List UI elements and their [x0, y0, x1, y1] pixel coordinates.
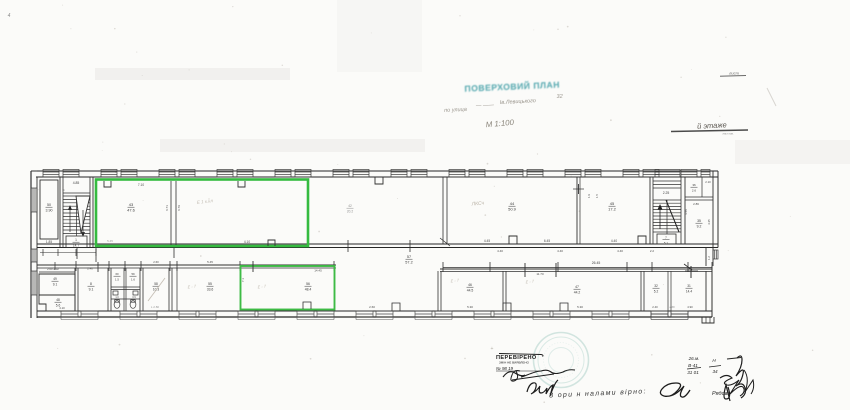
svg-text:2.60: 2.60: [369, 305, 375, 309]
svg-text:9.2: 9.2: [697, 225, 702, 229]
svg-text:4.10: 4.10: [244, 240, 250, 244]
svg-text:32: 32: [654, 284, 658, 288]
svg-text:33.6: 33.6: [207, 288, 214, 292]
svg-text:1.5: 1.5: [115, 278, 119, 282]
svg-text:31: 31: [687, 284, 691, 288]
svg-text:46: 46: [468, 283, 472, 287]
svg-text:6.79: 6.79: [177, 205, 181, 211]
svg-text:14.4: 14.4: [686, 290, 692, 294]
svg-text:14.45: 14.45: [314, 269, 322, 273]
svg-text:34: 34: [712, 369, 718, 374]
svg-text:4.45: 4.45: [484, 239, 490, 243]
svg-text:32: 32: [556, 94, 562, 100]
svg-text:6.71: 6.71: [165, 205, 169, 211]
svg-text:45: 45: [610, 201, 615, 206]
svg-text:1.6: 1.6: [131, 278, 135, 282]
svg-text:43: 43: [129, 202, 134, 207]
svg-text:20.2: 20.2: [347, 210, 353, 214]
svg-text:44: 44: [510, 201, 515, 206]
svg-text:3.90: 3.90: [46, 209, 53, 213]
svg-text:+: +: [491, 346, 494, 352]
svg-text:2.40: 2.40: [652, 305, 658, 309]
svg-text:2.6: 2.6: [692, 189, 697, 193]
svg-text:9.1: 9.1: [53, 283, 58, 287]
svg-text:2.46: 2.46: [87, 267, 93, 271]
svg-text:5.2: 5.2: [654, 290, 659, 294]
svg-text:2.60: 2.60: [153, 260, 159, 264]
svg-text:2.10: 2.10: [705, 180, 711, 184]
svg-text:— ——: — ——: [475, 102, 495, 109]
svg-text:14.7: 14.7: [73, 244, 79, 248]
svg-text:57: 57: [407, 255, 411, 259]
svg-text:42: 42: [348, 204, 352, 208]
svg-text:48: 48: [56, 298, 60, 302]
svg-text:4.10: 4.10: [59, 306, 65, 310]
svg-text:57.2: 57.2: [405, 261, 412, 265]
svg-text:лист: лист: [728, 71, 739, 76]
svg-text:7.10: 7.10: [138, 183, 144, 187]
svg-text:4.90: 4.90: [687, 305, 693, 309]
svg-text:26.м.: 26.м.: [688, 356, 700, 361]
svg-text:4.55: 4.55: [684, 209, 688, 215]
svg-text:17.2: 17.2: [608, 207, 617, 212]
svg-text:2.86: 2.86: [693, 202, 699, 206]
svg-text:5.45: 5.45: [107, 239, 113, 243]
svg-text:50: 50: [47, 203, 51, 207]
svg-text:1.5: 1.5: [595, 194, 599, 198]
svg-text:50.9: 50.9: [508, 207, 517, 212]
svg-text:36: 36: [692, 183, 696, 187]
svg-text:№ 98 19: № 98 19: [496, 366, 514, 371]
svg-text:7.1: 7.1: [241, 278, 245, 282]
svg-text:4.40: 4.40: [497, 249, 503, 253]
svg-text:5.30: 5.30: [577, 305, 583, 309]
svg-text:4: 4: [8, 13, 11, 19]
svg-text:4.40: 4.40: [617, 249, 623, 253]
svg-text:1: 1: [75, 238, 77, 242]
svg-text:60: 60: [115, 272, 119, 276]
svg-text:ЗМІН НЕ ВИЯВЛЕНО: ЗМІН НЕ ВИЯВЛЕНО: [499, 361, 530, 365]
svg-text:4.40: 4.40: [611, 239, 617, 243]
svg-text:4.85: 4.85: [73, 181, 80, 185]
svg-text:44.5: 44.5: [467, 289, 474, 293]
svg-text:49: 49: [53, 277, 57, 281]
svg-text:по улица: по улица: [444, 107, 467, 114]
svg-text:лист пов.: лист пов.: [722, 133, 733, 136]
svg-text:L 2.80: L 2.80: [151, 305, 160, 309]
svg-text:4.40: 4.40: [557, 249, 563, 253]
svg-text:й этаже: й этаже: [697, 120, 727, 131]
svg-text:47.6: 47.6: [127, 208, 136, 213]
svg-text:1.9: 1.9: [587, 194, 591, 198]
svg-text:59: 59: [131, 272, 135, 276]
svg-text:1.85: 1.85: [46, 240, 52, 244]
svg-text:31 01: 31 01: [687, 370, 699, 375]
svg-text:2.25: 2.25: [663, 191, 670, 195]
svg-text:5.1: 5.1: [664, 241, 669, 245]
svg-text:Л: Л: [62, 189, 66, 191]
svg-text:В-41: В-41: [688, 363, 698, 368]
svg-text:2.00 2.02: 2.00 2.02: [47, 267, 59, 271]
svg-text:44.2: 44.2: [574, 291, 581, 295]
svg-text:58: 58: [154, 282, 158, 286]
svg-text:35: 35: [697, 219, 701, 223]
svg-text:6.45: 6.45: [544, 239, 550, 243]
svg-text:2.2: 2.2: [650, 249, 655, 253]
svg-text:8: 8: [90, 282, 92, 286]
svg-text:47: 47: [575, 285, 579, 289]
svg-text:5.30: 5.30: [467, 305, 473, 309]
svg-text:9.1: 9.1: [89, 288, 94, 292]
svg-text:11.70: 11.70: [536, 272, 544, 276]
svg-text:48.4: 48.4: [305, 288, 312, 292]
svg-text:56: 56: [306, 282, 310, 286]
svg-text:5.45: 5.45: [207, 260, 213, 264]
svg-text:55: 55: [208, 282, 212, 286]
svg-text:1.2: 1.2: [707, 256, 711, 260]
svg-text:ЛКСч: ЛКСч: [470, 200, 484, 207]
svg-text:4.35: 4.35: [707, 219, 711, 225]
svg-text:2.06: 2.06: [668, 305, 675, 309]
svg-text:26.45: 26.45: [592, 261, 601, 265]
